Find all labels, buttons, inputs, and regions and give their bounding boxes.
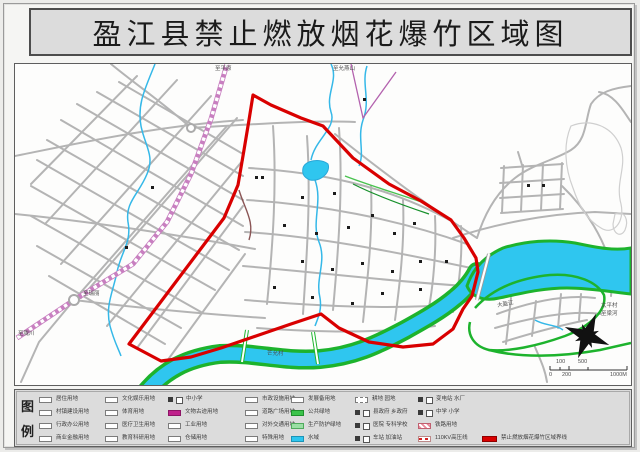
legend-item: 发展备用地: [291, 396, 336, 403]
legend-item: 医疗卫生用地: [105, 422, 155, 429]
legend-item: 仓储用地: [168, 435, 207, 442]
legend-item: 中小学: [168, 396, 203, 403]
legend-swatch: [291, 410, 304, 416]
legend-swatch: [39, 423, 52, 429]
legend-item-label: 耕地 园地: [372, 397, 396, 403]
legend-swatch: [418, 423, 431, 429]
legend-swatch: [291, 436, 304, 442]
legend-swatch: [418, 410, 432, 416]
legend-swatch: [39, 397, 52, 403]
legend-item-label: 禁止燃放烟花爆竹区域界线: [501, 436, 567, 442]
legend-caption: 图 例: [21, 396, 37, 440]
legend-item-label: 文物古迹用地: [185, 410, 218, 416]
legend-swatch: [168, 423, 181, 429]
legend-item-label: 居住用地: [56, 397, 78, 403]
road-network: [15, 64, 631, 382]
legend-item-label: 工业用地: [185, 423, 207, 429]
legend-item: 工业用地: [168, 422, 207, 429]
legend-swatch: [105, 436, 118, 442]
map-label: 芒允村: [267, 352, 284, 358]
screenshot-stage: 盈江县禁止燃放烟花爆竹区域图: [0, 0, 640, 452]
legend-swatch: [418, 436, 431, 442]
legend-swatch: [418, 397, 432, 403]
legend-item-label: 村镇建设用地: [56, 410, 89, 416]
legend-item-label: 医院 专科学校: [373, 423, 408, 429]
scale-bar: [550, 366, 627, 370]
roundabout: [69, 295, 79, 305]
legend-item: 居住用地: [39, 396, 78, 403]
poster: 盈江县禁止燃放烟花爆竹区域图: [3, 3, 635, 448]
legend-swatch: [39, 410, 52, 416]
map-label: 太平村: [601, 304, 618, 310]
legend-swatch: [482, 436, 497, 442]
legend-item: 村镇建设用地: [39, 409, 89, 416]
legend-item: 车站 加油站: [355, 435, 402, 442]
legend-item: 水域: [291, 435, 319, 442]
map-area: 至平原至允燕山至瑞丽至陇川太平村至梁河芒允村大盈江10050002001000M: [14, 63, 632, 386]
legend-item-label: 110KV高压线: [435, 436, 468, 442]
legend-item-label: 行政办公用地: [56, 423, 89, 429]
legend-item: 医院 专科学校: [355, 422, 408, 429]
legend-item: 禁止燃放烟花爆竹区域界线: [482, 435, 567, 442]
legend-item: 文物古迹用地: [168, 409, 218, 416]
map-label: 500: [578, 360, 587, 366]
legend-swatch: [105, 397, 118, 403]
title-box: 盈江县禁止燃放烟花爆竹区域图: [29, 8, 632, 56]
legend-swatch: [105, 410, 118, 416]
legend-item: 文化娱乐用地: [105, 396, 155, 403]
map-label: 至平原: [215, 67, 232, 73]
legend-item: 生产防护绿地: [291, 422, 341, 429]
utility-lines: [239, 64, 429, 240]
hill-contours: [566, 123, 627, 234]
legend-swatch: [355, 397, 368, 403]
legend-swatch: [245, 423, 258, 429]
legend-caption-top: 图: [21, 396, 37, 415]
legend-swatch: [168, 410, 181, 416]
legend-item-label: 中学 小学: [436, 410, 460, 416]
legend-swatch: [355, 410, 369, 416]
legend-swatch: [291, 423, 304, 429]
legend-item: 行政办公用地: [39, 422, 89, 429]
legend-item-label: 中小学: [186, 397, 203, 403]
legend-item-label: 仓储用地: [185, 436, 207, 442]
legend-swatch: [245, 436, 258, 442]
map-label: 200: [562, 373, 571, 379]
legend-item: 特殊用地: [245, 435, 284, 442]
river-lake: [467, 241, 631, 299]
legend-item-label: 县政府 乡政府: [373, 410, 408, 416]
map-label: 至允燕山: [333, 67, 355, 73]
page-title: 盈江县禁止燃放烟花爆竹区域图: [92, 11, 568, 53]
legend-swatch: [245, 397, 258, 403]
legend-caption-bottom: 例: [21, 421, 37, 440]
legend-item-label: 变电站 水厂: [436, 397, 465, 403]
map-label: 0: [549, 373, 552, 379]
legend-swatch: [39, 436, 52, 442]
legend-item: 商业金融用地: [39, 435, 89, 442]
legend-swatch: [291, 397, 304, 403]
legend-item-label: 公共绿地: [308, 410, 330, 416]
legend-item: 县政府 乡政府: [355, 409, 408, 416]
legend-item-label: 文化娱乐用地: [122, 397, 155, 403]
map-label: 至梁河: [601, 312, 618, 318]
legend-item-label: 教育科研用地: [122, 436, 155, 442]
map-label: 至瑞丽: [83, 292, 100, 298]
legend-item: 耕地 园地: [355, 396, 396, 403]
power-line: [351, 64, 396, 118]
legend-swatch: [105, 423, 118, 429]
legend-item: 道路广场用地: [245, 409, 295, 416]
legend-item: 体育用地: [105, 409, 144, 416]
legend-item-label: 生产防护绿地: [308, 423, 341, 429]
legend-item-label: 体育用地: [122, 410, 144, 416]
map-canvas: [15, 64, 631, 385]
legend-swatch: [168, 397, 182, 403]
map-label: 至陇川: [18, 332, 35, 338]
legend-item: 公共绿地: [291, 409, 330, 416]
legend-item-label: 水域: [308, 436, 319, 442]
legend-item-label: 车站 加油站: [373, 436, 402, 442]
legend-swatch: [355, 423, 369, 429]
legend-item: 变电站 水厂: [418, 396, 465, 403]
legend-item-label: 铁路用地: [435, 423, 457, 429]
legend: 图 例 居住用地 村镇建设用地 行政办公用地 商业金融用地 文化娱乐用地 体育用…: [14, 389, 632, 447]
map-label: 100: [556, 360, 565, 366]
legend-item-label: 特殊用地: [262, 436, 284, 442]
legend-item-label: 医疗卫生用地: [122, 423, 155, 429]
legend-swatch: [355, 436, 369, 442]
legend-item: 中学 小学: [418, 409, 460, 416]
legend-item-label: 发展备用地: [308, 397, 336, 403]
legend-swatch: [245, 410, 258, 416]
legend-item: 市政设施用地: [245, 396, 295, 403]
legend-item: 110KV高压线: [418, 435, 468, 442]
legend-item: 教育科研用地: [105, 435, 155, 442]
legend-item-label: 商业金融用地: [56, 436, 89, 442]
river-greenbelt: [143, 272, 477, 385]
legend-item: 铁路用地: [418, 422, 457, 429]
railway-line: [17, 64, 227, 338]
legend-swatch: [168, 436, 181, 442]
map-label: 1000M: [610, 373, 627, 379]
roundabout: [187, 124, 195, 132]
legend-item: 对外交通用地: [245, 422, 295, 429]
